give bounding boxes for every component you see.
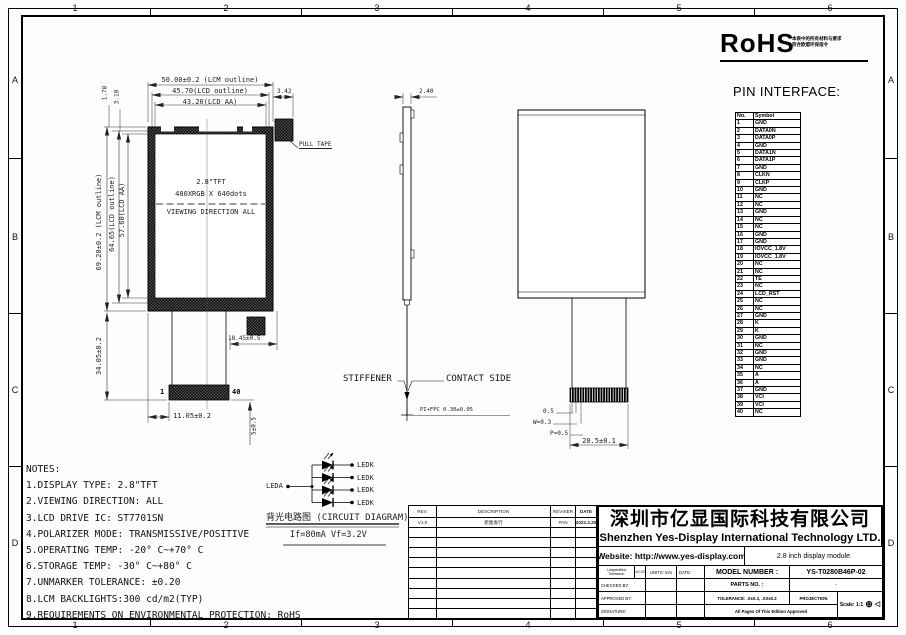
revision-cell [409, 568, 437, 578]
rohs-claim-text: 本表中的所有材料与要求 符合欧盟环保指令 [792, 36, 842, 48]
contact-side-label: CONTACT SIDE [446, 374, 511, 384]
rohs-logo: RoHS 本表中的所有材料与要求 符合欧盟环保指令 [720, 30, 870, 57]
pin-no: 1 [736, 120, 754, 127]
revision-row [409, 599, 596, 609]
units-cell: UNITS: mm [646, 566, 677, 579]
pin-row: 35A [736, 372, 801, 379]
pin-row: 3DATA0P [736, 135, 801, 142]
checked-by-cell: CHECKED BY: [599, 579, 646, 592]
pin-symbol: NC [754, 224, 801, 231]
pin-no: 8 [736, 172, 754, 179]
dim-aa-height: 57.60(LCD AA) [118, 183, 126, 238]
revision-header-row: REV. DESCRIPTION REVISER DATE [409, 506, 596, 518]
pin-no: 25 [736, 298, 754, 305]
parts-no-label: PARTS NO. : [705, 579, 790, 592]
pin-no: 20 [736, 261, 754, 268]
dim-lcd-width: 45.70(LCD outline) [172, 87, 248, 95]
pin-row: 40NC [736, 409, 801, 416]
revision-cell [576, 579, 596, 589]
pin-col-no: No. [736, 113, 754, 120]
panel-type-label: 2.8"TFT [196, 178, 226, 186]
pin-row: 29K [736, 327, 801, 334]
revision-cell [576, 589, 596, 599]
title-block: 深圳市亿显国际科技有限公司 Shenzhen Yes-Display Inter… [597, 505, 884, 619]
pin-row: 22TE [736, 275, 801, 282]
pin-row: 5DATA1N [736, 150, 801, 157]
pin-row: 2DATA0N [736, 127, 801, 134]
approved-date-value [677, 592, 705, 605]
revision-row [409, 528, 596, 538]
rev-col-date: DATE [576, 506, 596, 518]
revision-cell [576, 538, 596, 548]
revision-row [409, 568, 596, 578]
note-item: 1.DISPLAY TYPE: 2.8"TFT [26, 478, 301, 494]
revision-cell [576, 558, 596, 568]
dim-0-5: 0.5 [543, 408, 554, 415]
checked-by-value [646, 579, 677, 592]
checked-date-value [677, 579, 705, 592]
rev-col-rev: REV. [409, 506, 437, 518]
notes-title: NOTES: [26, 462, 301, 478]
pin-symbol: VCI [754, 394, 801, 401]
revision-row [409, 538, 596, 548]
pin-no: 6 [736, 157, 754, 164]
pin-no: 2 [736, 127, 754, 134]
pin-symbol: A [754, 372, 801, 379]
scale-label: Scale: 1:1 [840, 602, 863, 608]
signature-cell: SIGNATURE: [599, 605, 646, 617]
pin-row: 39VCI [736, 401, 801, 408]
pin-no: 15 [736, 224, 754, 231]
product-cell: 2.8 inch display module [745, 547, 882, 566]
zone-number-top-4: 4 [523, 3, 533, 13]
pin-no: 40 [736, 409, 754, 416]
zone-number-top-3: 3 [372, 3, 382, 13]
pin-symbol: NC [754, 194, 801, 201]
pin-symbol: NC [754, 305, 801, 312]
note-item: 7.UNMARKER TOLERANCE: ±0.20 [26, 575, 301, 591]
pin-no: 19 [736, 253, 754, 260]
pin-no: 23 [736, 283, 754, 290]
pin-row: 6DATA1P [736, 157, 801, 164]
pin-symbol: DATA0P [754, 135, 801, 142]
rohs-logo-text: RoHS [720, 28, 795, 58]
pin-symbol: GND [754, 142, 801, 149]
revision-cell [576, 568, 596, 578]
pin-no: 18 [736, 246, 754, 253]
pin-symbol: GND [754, 350, 801, 357]
revision-cell [437, 528, 551, 538]
note-item: 4.POLARIZER MODE: TRANSMISSIVE/POSITIVE [26, 527, 301, 543]
zone-number-top-2: 2 [221, 3, 231, 13]
tolerance-cell: TOLERANCE: .X±0.3, .XX±0.2 [705, 592, 790, 605]
revision-cell [551, 528, 576, 538]
revision-cell: 新图发行 [437, 518, 551, 528]
note-item: 3.LCD DRIVE IC: ST7701SN [26, 511, 301, 527]
dim-1-78: 1.78 [102, 86, 109, 100]
pin-no: 10 [736, 187, 754, 194]
pin-row: 32GND [736, 350, 801, 357]
pin-symbol: NC [754, 268, 801, 275]
ledk-label: LEDK [357, 486, 374, 494]
pin-row: 25NC [736, 298, 801, 305]
pin-row: 36A [736, 379, 801, 386]
pin-row: 7GND [736, 164, 801, 171]
pin-no: 29 [736, 327, 754, 334]
zone-number-top-1: 1 [70, 3, 80, 13]
dim-lcd-height: 64.65(LCD outline) [108, 176, 116, 252]
pin-symbol: IOVCC_1.8V [754, 246, 801, 253]
pin-no: 28 [736, 320, 754, 327]
rev-col-reviser: REVISER [551, 506, 576, 518]
pin-symbol: IOVCC_1.8V [754, 253, 801, 260]
projection-symbol-icon: ⊕ [865, 600, 873, 609]
note-item: 8.LCM BACKLIGHTS:300 cd/m2(TYP) [26, 592, 301, 608]
pin-row: 37GND [736, 387, 801, 394]
revision-cell [576, 609, 596, 619]
pin-row: 18IOVCC_1.8V [736, 246, 801, 253]
signature-value [646, 605, 677, 617]
pin-no: 33 [736, 357, 754, 364]
ledk-label: LEDK [357, 461, 374, 469]
zone-letter-left-B: B [10, 232, 20, 242]
note-item: 2.VIEWING DIRECTION: ALL [26, 494, 301, 510]
pin-symbol: NC [754, 364, 801, 371]
pin-symbol: DATA0N [754, 127, 801, 134]
pin-no: 24 [736, 290, 754, 297]
pin-symbol: DATA1N [754, 150, 801, 157]
drawing-sheet: RoHS 本表中的所有材料与要求 符合欧盟环保指令 PIN INTERFACE:… [0, 0, 906, 635]
signature-date-value [677, 605, 705, 617]
revision-row: V1.0新图发行PAN2022.3.20 [409, 518, 596, 528]
company-cell: 深圳市亿显国际科技有限公司 Shenzhen Yes-Display Inter… [599, 507, 882, 547]
dim-3-42: 3.42 [277, 88, 291, 95]
dim-aa-width: 43.20(LCD AA) [183, 98, 238, 106]
revision-row [409, 609, 596, 619]
rohs-claim-line2: 符合欧盟环保指令 [792, 42, 842, 48]
pin-symbol: NC [754, 201, 801, 208]
pin-symbol: GND [754, 357, 801, 364]
revision-cell [437, 599, 551, 609]
pin1-label: 1 [160, 388, 164, 396]
zone-letter-right-B: B [886, 232, 896, 242]
revision-cell [551, 558, 576, 568]
revision-cell [409, 538, 437, 548]
pin-row: 30GND [736, 335, 801, 342]
pin-no: 16 [736, 231, 754, 238]
pin-no: 14 [736, 216, 754, 223]
pin-symbol: K [754, 320, 801, 327]
pin-interface-table: No. Symbol 1GND2DATA0N3DATA0P4GND5DATA1N… [735, 112, 801, 417]
website-cell: Website: http://www.yes-display.com [599, 547, 745, 566]
pin-no: 5 [736, 150, 754, 157]
dim-20-5: 20.5±0.1 [582, 437, 616, 445]
rev-col-description: DESCRIPTION [437, 506, 551, 518]
pin-no: 12 [736, 201, 754, 208]
revision-row [409, 579, 596, 589]
pin-symbol: GND [754, 187, 801, 194]
zone-letter-left-C: C [10, 385, 20, 395]
zone-letter-right-D: D [886, 538, 896, 548]
revision-cell [551, 538, 576, 548]
pin-symbol: CLKN [754, 172, 801, 179]
pin-col-symbol: Symbol [754, 113, 801, 120]
pin-no: 11 [736, 194, 754, 201]
circuit-spec: If=80mA Vf=3.2V [290, 530, 367, 540]
pin-symbol: DATA1P [754, 157, 801, 164]
stiffener-label: STIFFENER [343, 374, 392, 384]
revision-cell [409, 558, 437, 568]
revision-cell [551, 579, 576, 589]
pin-no: 34 [736, 364, 754, 371]
scale-cell: Scale: 1:1 ⊕ ◁ [838, 592, 882, 617]
pin-symbol: K [754, 327, 801, 334]
projection-cone-icon: ◁ [875, 601, 880, 608]
dim-w-0-3: W=0.3 [533, 419, 551, 426]
pin-symbol: VCI [754, 401, 801, 408]
zone-letter-left-A: A [10, 75, 20, 85]
revision-cell [576, 528, 596, 538]
pin-no: 22 [736, 275, 754, 282]
dim-lcm-height: 69.20±0.2 (LCM outline) [95, 174, 103, 271]
pin-no: 38 [736, 394, 754, 401]
ledk-label: LEDK [357, 499, 374, 507]
dim-11-05: 11.05±0.2 [173, 412, 211, 420]
pin-no: 39 [736, 401, 754, 408]
pin-symbol: NC [754, 298, 801, 305]
panel-resolution-label: 480XRGB X 640dots [175, 190, 247, 198]
revision-cell [409, 548, 437, 558]
pin-symbol: GND [754, 238, 801, 245]
zone-letter-right-C: C [886, 385, 896, 395]
revision-cell [409, 528, 437, 538]
dim-5: 5±0.5 [251, 417, 258, 435]
revision-cell [409, 579, 437, 589]
pin-symbol: NC [754, 261, 801, 268]
revision-cell: 2022.3.20 [576, 518, 596, 528]
revision-cell [437, 609, 551, 619]
approved-by-value [646, 592, 677, 605]
pin-row: 21NC [736, 268, 801, 275]
pin-row: 27GND [736, 312, 801, 319]
zone-number-top-5: 5 [674, 3, 684, 13]
fpc-thickness-label: PI+FPC 0.30±0.05 [420, 407, 473, 413]
pin-row: 38VCI [736, 394, 801, 401]
revision-row [409, 548, 596, 558]
pin-row: 15NC [736, 224, 801, 231]
zone-number-bottom-5: 5 [674, 620, 684, 630]
pin-symbol: NC [754, 409, 801, 416]
model-number-value: YS-T0280B46P-02 [790, 566, 882, 579]
pin-row: 24LCD_RST [736, 290, 801, 297]
revision-cell [437, 568, 551, 578]
model-number-label: MODEL NUMBER : [705, 566, 790, 579]
revision-cell [437, 548, 551, 558]
company-name-cn: 深圳市亿显国际科技有限公司 [599, 508, 881, 532]
pin-symbol: A [754, 379, 801, 386]
pin-row: 23NC [736, 283, 801, 290]
pin-no: 37 [736, 387, 754, 394]
pin-no: 4 [736, 142, 754, 149]
pin-no: 17 [736, 238, 754, 245]
pin-row: 9CLKP [736, 179, 801, 186]
pin-no: 32 [736, 350, 754, 357]
revision-cell [409, 599, 437, 609]
pin-symbol: GND [754, 335, 801, 342]
pin-no: 27 [736, 312, 754, 319]
pin-symbol: GND [754, 209, 801, 216]
revision-cell [437, 538, 551, 548]
revision-cell [437, 579, 551, 589]
note-item: 9.REQUIREMENTS ON ENVIRONMENTAL PROTECTI… [26, 608, 301, 624]
revision-cell [437, 558, 551, 568]
pin-no: 9 [736, 179, 754, 186]
zone-number-bottom-2: 2 [221, 620, 231, 630]
pin-row: 10GND [736, 187, 801, 194]
pin-symbol: GND [754, 312, 801, 319]
parts-no-value: - [790, 579, 882, 592]
revision-cell [551, 589, 576, 599]
date-cell: DATE: [677, 566, 705, 579]
pin-no: 35 [736, 372, 754, 379]
pin-symbol: GND [754, 164, 801, 171]
unspecified-tolerance-value: ±0.20 [635, 566, 646, 579]
pin-symbol: NC [754, 283, 801, 290]
revision-row [409, 589, 596, 599]
pin-no: 36 [736, 379, 754, 386]
revision-cell [551, 548, 576, 558]
pin-symbol: LCD_RST [754, 290, 801, 297]
revision-cell [551, 609, 576, 619]
zone-number-bottom-6: 6 [825, 620, 835, 630]
dim-2-40: 2.40 [419, 88, 433, 95]
pin-row: 34NC [736, 364, 801, 371]
zone-number-top-6: 6 [825, 3, 835, 13]
pin-row: 11NC [736, 194, 801, 201]
company-name-en: Shenzhen Yes-Display International Techn… [599, 532, 881, 545]
pin-no: 31 [736, 342, 754, 349]
revision-cell [576, 548, 596, 558]
pin-no: 30 [736, 335, 754, 342]
pin-row: 12NC [736, 201, 801, 208]
ledk-label: LEDK [357, 474, 374, 482]
revision-cell [576, 599, 596, 609]
projection-cell: PROJECTION [790, 592, 838, 605]
pull-tape-label: PULL TAPE [299, 141, 332, 149]
pin-row: 20NC [736, 261, 801, 268]
dim-3-10: 3.10 [114, 90, 121, 104]
revision-cell [437, 589, 551, 599]
pin-interface-title: PIN INTERFACE: [733, 84, 840, 99]
pin-symbol: NC [754, 342, 801, 349]
dim-p-0-5: P=0.5 [550, 430, 568, 437]
zone-letter-right-A: A [886, 75, 896, 85]
pin-row: 17GND [736, 238, 801, 245]
pin-row: 19IOVCC_1.8V [736, 253, 801, 260]
pin-symbol: GND [754, 231, 801, 238]
pin-no: 21 [736, 268, 754, 275]
zone-letter-left-D: D [10, 538, 20, 548]
zone-number-bottom-1: 1 [70, 620, 80, 630]
revision-cell [551, 568, 576, 578]
pin-no: 26 [736, 305, 754, 312]
revision-table: REV. DESCRIPTION REVISER DATE V1.0新图发行PA… [408, 505, 597, 619]
revision-row [409, 558, 596, 568]
pin-row: 31NC [736, 342, 801, 349]
pin-row: 13GND [736, 209, 801, 216]
pin-no: 13 [736, 209, 754, 216]
zone-number-bottom-3: 3 [372, 620, 382, 630]
dim-lcm-width: 50.00±0.2 (LCM outline) [162, 76, 259, 84]
unspecified-tolerance-label: Unspecified Tolerance: [599, 566, 635, 579]
pin-no: 7 [736, 164, 754, 171]
revision-cell [551, 599, 576, 609]
dim-18-45: 18.45±0.5 [228, 335, 261, 342]
pin-symbol: TE [754, 275, 801, 282]
pin-symbol: GND [754, 387, 801, 394]
pin-row: 16GND [736, 231, 801, 238]
notes-block: NOTES: 1.DISPLAY TYPE: 2.8"TFT2.VIEWING … [26, 462, 301, 624]
pin-symbol: GND [754, 120, 801, 127]
pin-row: 1GND [736, 120, 801, 127]
pin-symbol: NC [754, 216, 801, 223]
viewing-direction-label: VIEWING DIRECTION ALL [167, 208, 256, 216]
pin-row: 4GND [736, 142, 801, 149]
pin-row: 14NC [736, 216, 801, 223]
pin-row: 33GND [736, 357, 801, 364]
zone-number-bottom-4: 4 [523, 620, 533, 630]
revision-cell [409, 609, 437, 619]
pin40-label: 40 [232, 388, 240, 396]
revision-cell: V1.0 [409, 518, 437, 528]
pin-row: 26NC [736, 305, 801, 312]
dim-34-05: 34.05±0.2 [95, 337, 103, 375]
note-item: 5.OPERATING TEMP: -20° C~+70° C [26, 543, 301, 559]
pin-symbol: CLKP [754, 179, 801, 186]
note-item: 6.STORAGE TEMP: -30° C~+80° C [26, 559, 301, 575]
pin-no: 3 [736, 135, 754, 142]
pin-table-header: No. Symbol [736, 113, 801, 120]
revision-cell: PAN [551, 518, 576, 528]
pin-row: 8CLKN [736, 172, 801, 179]
pin-row: 28K [736, 320, 801, 327]
edition-approved-note: All Pages Of This Edition Approved [705, 605, 838, 617]
revision-cell [409, 589, 437, 599]
approved-by-cell: APPROVED BY: [599, 592, 646, 605]
